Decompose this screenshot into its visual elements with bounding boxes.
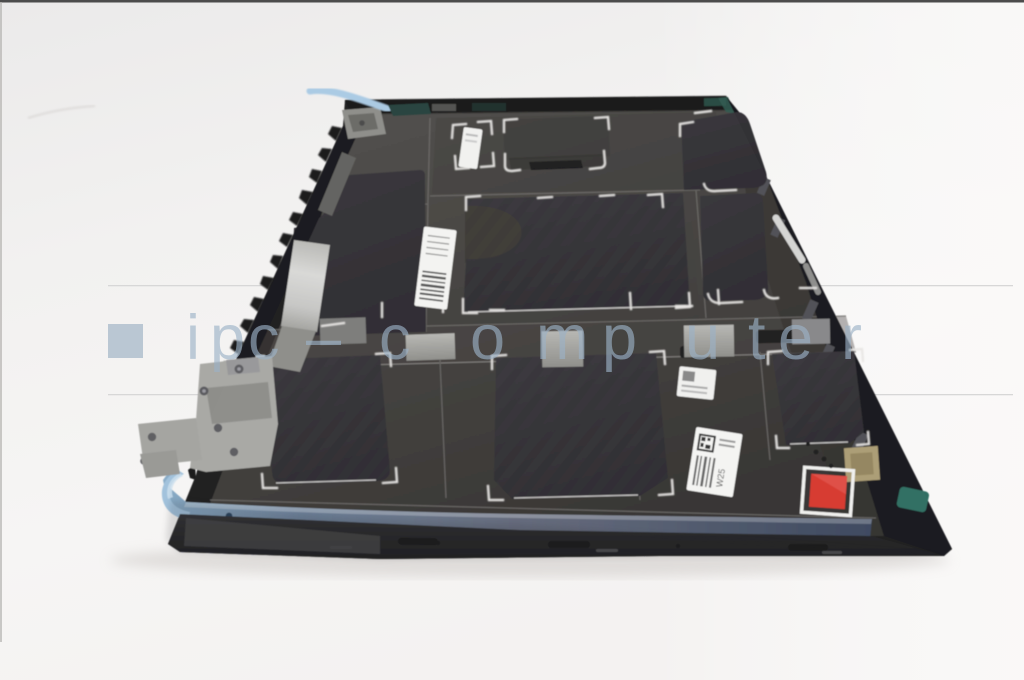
svg-text:u: u [685, 303, 720, 373]
svg-text:c: c [379, 303, 411, 373]
svg-text:c: c [248, 303, 280, 373]
svg-text:e: e [778, 303, 813, 373]
svg-text:o: o [470, 303, 505, 373]
svg-text:–: – [306, 303, 341, 373]
svg-text:m: m [536, 303, 588, 373]
svg-text:p: p [602, 303, 637, 373]
svg-text:r: r [841, 303, 862, 373]
svg-text:i: i [186, 303, 200, 373]
svg-text:p: p [210, 303, 245, 373]
svg-text:t: t [748, 303, 766, 373]
